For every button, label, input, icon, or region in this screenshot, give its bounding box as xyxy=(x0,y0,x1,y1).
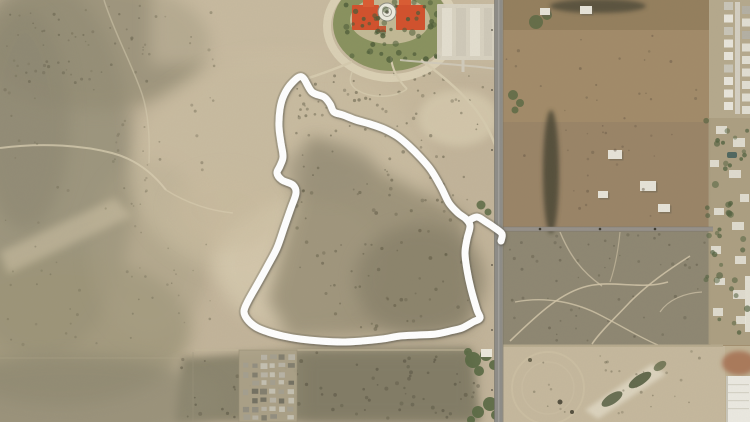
satellite-map xyxy=(0,0,750,422)
map-viewport[interactable] xyxy=(0,0,750,422)
grain-overlay xyxy=(0,0,750,422)
